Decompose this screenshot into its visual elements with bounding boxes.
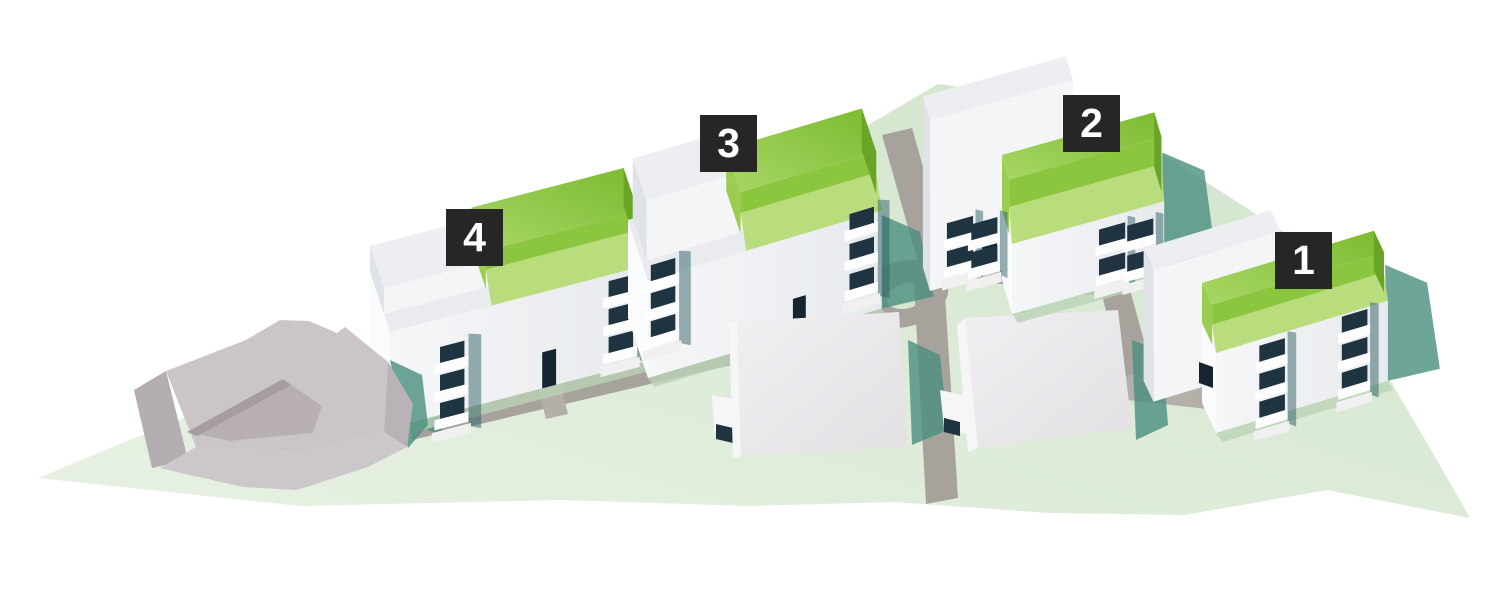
building-3-marker[interactable]: 3 [700, 115, 757, 172]
building-1-marker[interactable]: 1 [1275, 232, 1332, 289]
building-4-marker[interactable]: 4 [446, 209, 503, 266]
building-2-marker[interactable]: 2 [1063, 95, 1120, 152]
balcony-shadow [1000, 210, 1008, 278]
balcony-shadow [1288, 331, 1297, 426]
rear-block-left [923, 96, 930, 291]
site-render [0, 0, 1500, 600]
cast-shadow [1385, 265, 1440, 381]
roof [737, 312, 907, 456]
site-plan-3d: 4 3 2 1 [0, 0, 1500, 600]
balcony-shadow [469, 334, 482, 429]
rear-block-left [1144, 249, 1154, 402]
roof [965, 310, 1132, 448]
balcony-shadow [679, 251, 691, 345]
door-opening [542, 349, 556, 389]
balcony-shadow [1370, 302, 1379, 397]
balcony-shadow [878, 200, 890, 299]
